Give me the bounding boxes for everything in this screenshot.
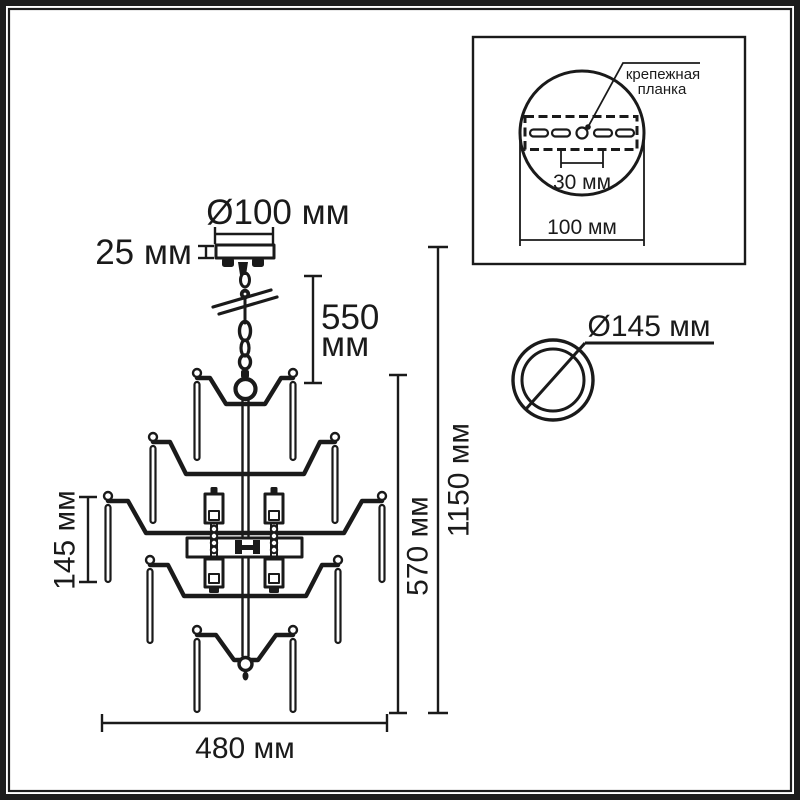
- bar-bracket: [241, 545, 254, 550]
- tier-4-arm: [150, 565, 338, 596]
- pendant-rod: [195, 639, 200, 712]
- arm-ring: [334, 556, 342, 564]
- arm-ring: [193, 369, 201, 377]
- dim-canopy-diameter-label: Ø100 мм: [206, 193, 349, 232]
- candle-body: [205, 494, 223, 523]
- dim-canopy-height-ticks: [198, 246, 214, 258]
- arm-ring: [149, 433, 157, 441]
- pendant-rod: [336, 569, 341, 643]
- pendant-rod: [333, 446, 338, 523]
- ball-cap: [241, 370, 249, 378]
- mount-plate-label-line2: планка: [638, 81, 687, 98]
- candle-body: [265, 494, 283, 523]
- ring-side-view: Ø145 мм: [513, 310, 714, 420]
- pendant-rod: [151, 446, 156, 523]
- chandelier-dimension-drawing: Ø100 мм 25 мм 550 мм 570 мм 1150 мм 145 …: [0, 0, 800, 800]
- arm-ring: [289, 626, 297, 634]
- bar-bracket: [253, 540, 260, 554]
- bar-bracket: [235, 540, 242, 554]
- center-column: [243, 399, 249, 656]
- mount-plate-inset: крепежная планка 30 мм 100 мм: [473, 37, 745, 264]
- chain-link: [241, 273, 250, 287]
- dim-ring-diameter-label: Ø145 мм: [588, 310, 711, 343]
- front-view-dimensions: Ø100 мм 25 мм 550 мм 570 мм 1150 мм 145 …: [49, 193, 476, 765]
- hanging-ball: [236, 379, 256, 399]
- arm-ring: [193, 626, 201, 634]
- dim-slot-spacing-label: 30 мм: [553, 171, 611, 194]
- arm-ring: [289, 369, 297, 377]
- mount-plate: [525, 117, 637, 150]
- dim-body-height-label: 570 мм: [402, 496, 435, 596]
- chain-break-icon: [219, 297, 277, 314]
- tier-2-arm: [153, 442, 335, 474]
- dim-canopy-height-label: 25 мм: [95, 233, 192, 272]
- technical-drawing-page: Ø100 мм 25 мм 550 мм 570 мм 1150 мм 145 …: [0, 0, 800, 800]
- bottom-finial-drop: [243, 672, 249, 681]
- canopy-mount-right: [252, 258, 264, 267]
- pendant-rod: [148, 569, 153, 643]
- arm-ring: [104, 492, 112, 500]
- leader-dot: [585, 124, 591, 130]
- pendant-rod: [291, 639, 296, 712]
- ceiling-canopy: [216, 245, 274, 258]
- pendant-rod: [291, 382, 296, 460]
- dim-plate-width-label: 100 мм: [547, 216, 617, 239]
- tier-3-arm: [108, 501, 382, 533]
- dim-chain-length-unit: мм: [321, 325, 369, 364]
- bottom-finial: [239, 658, 252, 671]
- pendant-rod: [106, 505, 111, 582]
- dim-width-label: 480 мм: [195, 732, 295, 765]
- pendant-rod: [195, 382, 200, 460]
- suspension-chain: [213, 273, 277, 399]
- pendant-rod: [380, 505, 385, 582]
- arm-ring: [331, 433, 339, 441]
- arm-ring: [146, 556, 154, 564]
- chain-knot-hole: [244, 293, 247, 296]
- arm-ring: [378, 492, 386, 500]
- dim-total-height-label: 1150 мм: [443, 423, 476, 537]
- dim-pendant-length-label: 145 мм: [49, 490, 82, 590]
- canopy-mount-left: [222, 258, 234, 267]
